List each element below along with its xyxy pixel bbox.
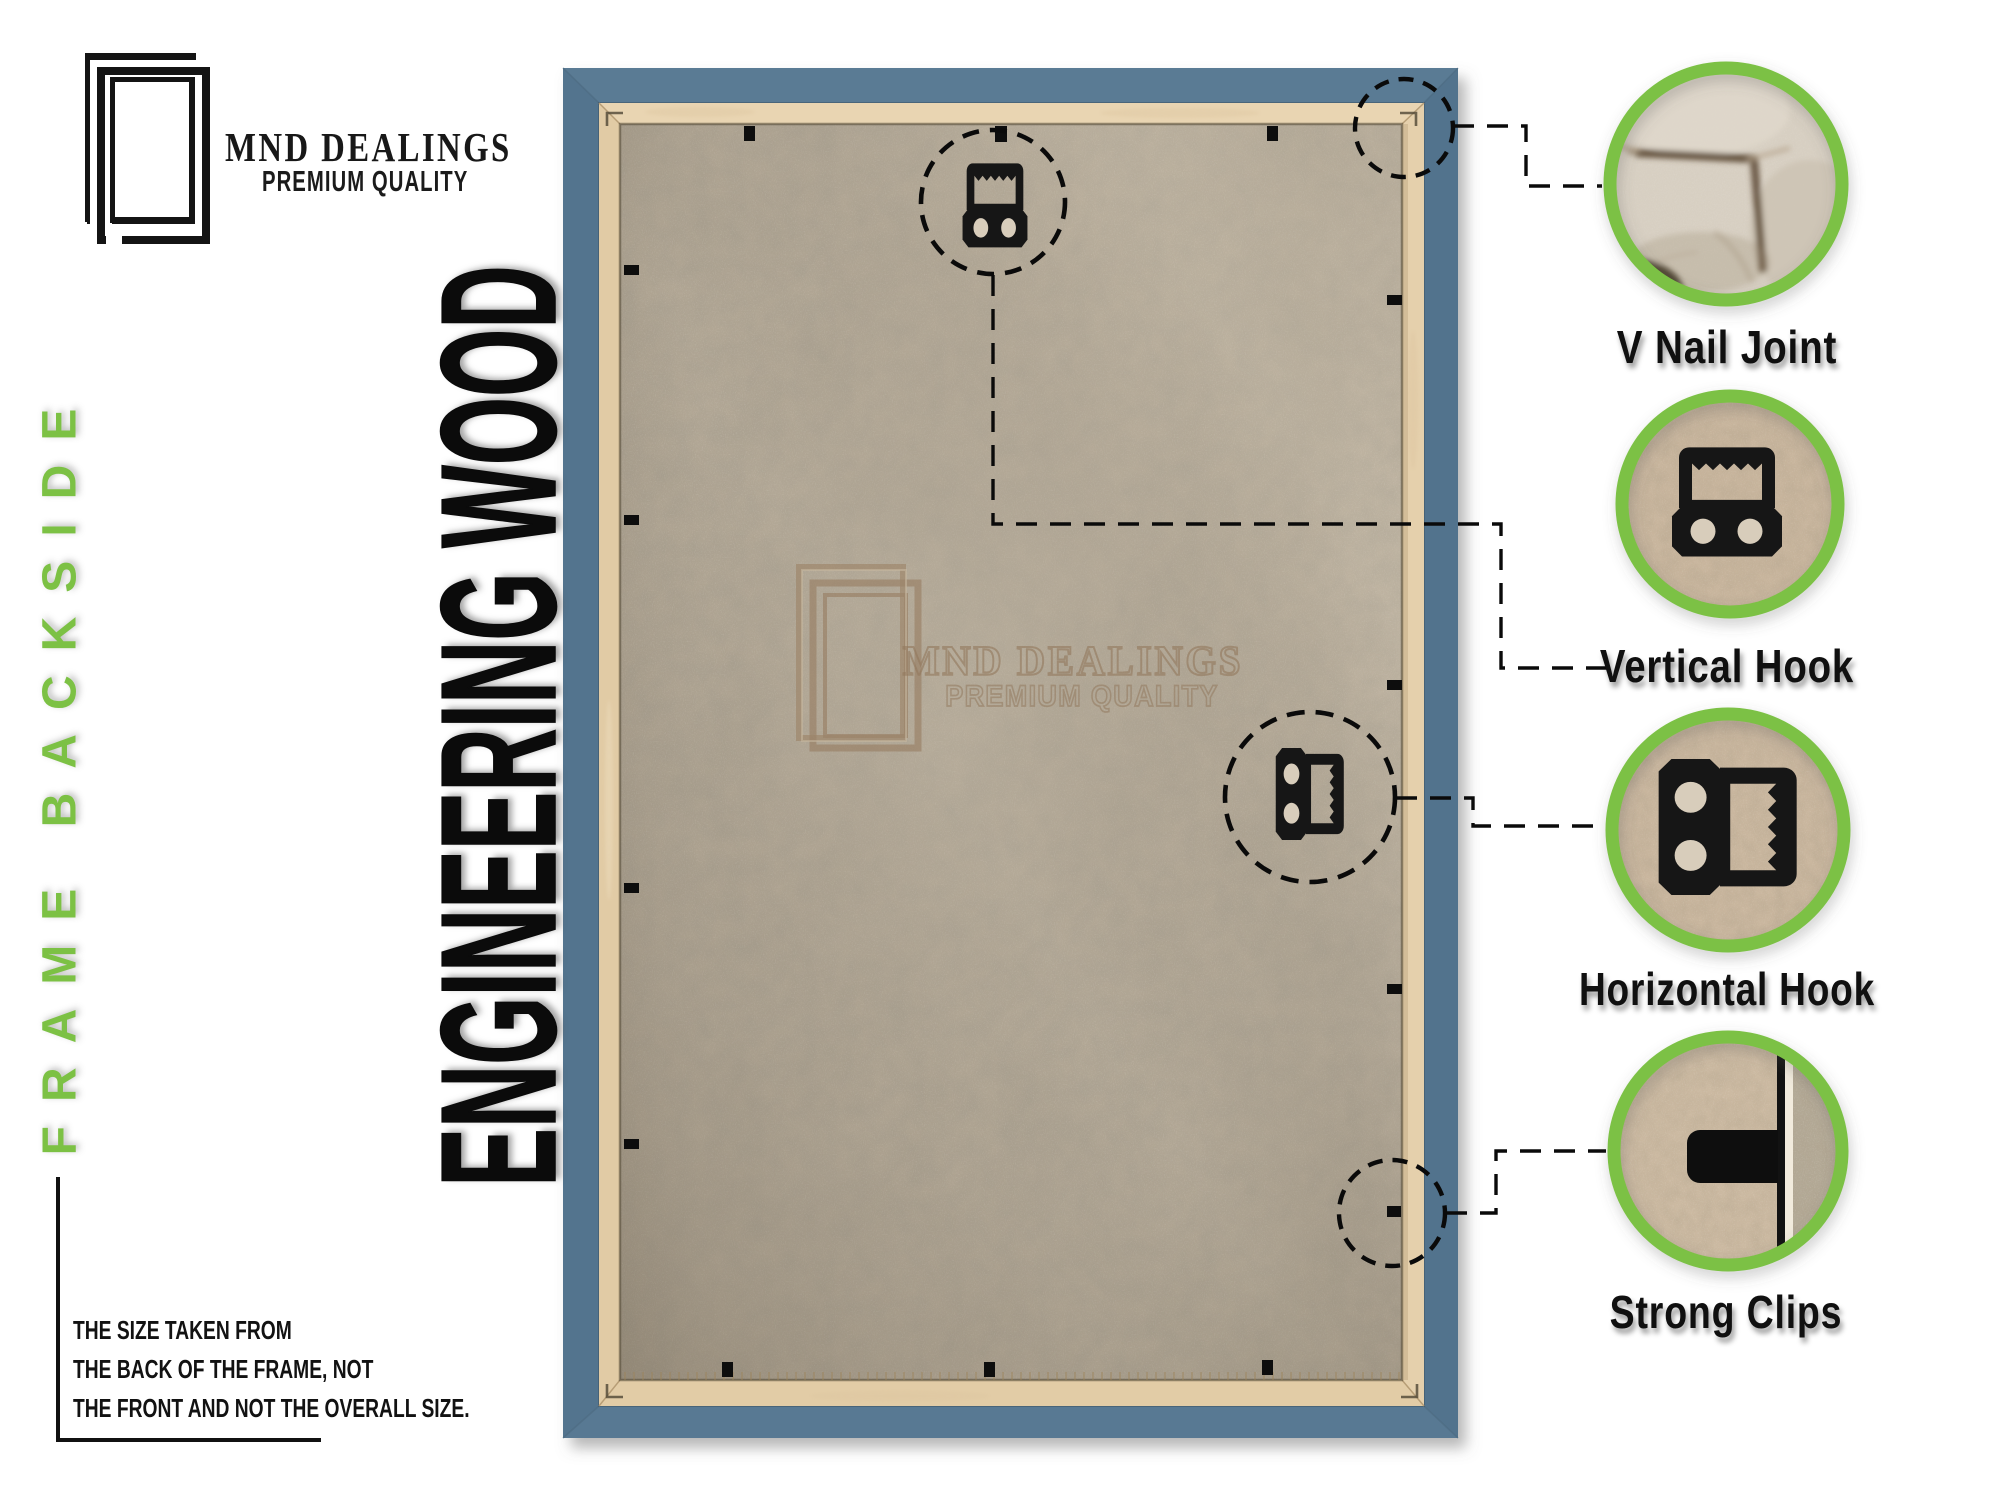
svg-text:PREMIUM QUALITY: PREMIUM QUALITY (945, 680, 1219, 714)
svg-text:MND DEALINGS: MND DEALINGS (903, 638, 1244, 685)
